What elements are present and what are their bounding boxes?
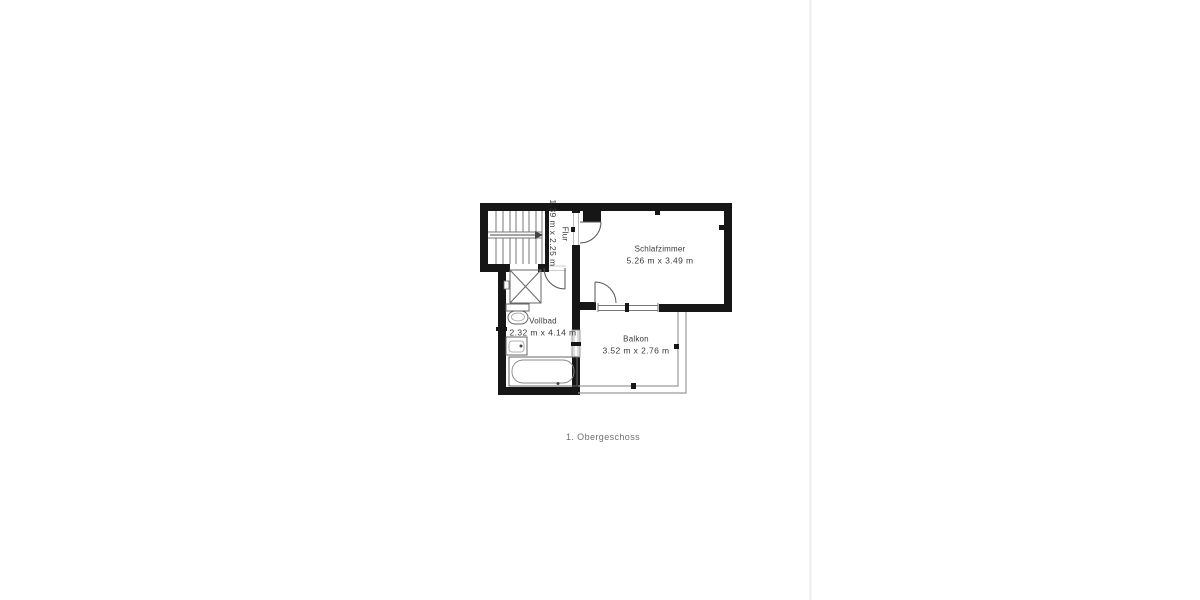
wall-flur-right-stub	[572, 203, 580, 213]
room-label-schlafzimmer: Schlafzimmer 5.26 m x 3.49 m	[627, 244, 694, 267]
sink	[506, 337, 527, 355]
door-frame-marker	[571, 227, 575, 232]
room-label-flur-dimensions: 1.39 m x 2.25 m	[548, 200, 558, 267]
wall-balcony-door-sill	[572, 302, 596, 310]
floorplan-scan: 1.39 m x 2.25 m Flur Schlafzimmer 5.26 m…	[0, 0, 1200, 600]
window-marker	[625, 303, 629, 312]
room-dimensions: 3.52 m x 2.76 m	[603, 345, 670, 357]
floorplan-drawing	[0, 0, 1200, 600]
toilet-tank	[506, 304, 529, 311]
room-name: Vollbad	[510, 316, 577, 327]
door-swing-arc	[580, 222, 601, 243]
room-label-flur: Flur	[561, 227, 570, 242]
floor-caption: 1. Obergeschoss	[566, 432, 640, 442]
wall-vollbad-right-lower	[572, 357, 580, 388]
shower-valve-icon	[504, 281, 509, 289]
wall-stair-left	[480, 203, 488, 272]
balcony-door	[595, 282, 616, 303]
wall-flur-right-main	[572, 245, 580, 302]
wall-schlafzimmer-bottom	[659, 304, 732, 312]
wall-vollbad-bottom	[498, 387, 580, 395]
room-dimensions: 5.26 m x 3.49 m	[627, 255, 694, 267]
staircase	[488, 211, 543, 264]
dimension-tick-vollbad-window	[571, 342, 581, 346]
wall-schlafzimmer-right	[724, 203, 732, 312]
sink-drain-icon	[520, 345, 523, 348]
door-swing-arc	[595, 282, 616, 303]
room-label-balkon: Balkon 3.52 m x 2.76 m	[603, 334, 670, 357]
dimension-tick-vollbad-left	[496, 327, 507, 331]
railing-tick-bottom	[631, 383, 636, 389]
room-name: Schlafzimmer	[627, 244, 694, 255]
railing-tick-right	[674, 344, 679, 349]
wall-entry-pillar	[583, 203, 601, 222]
balcony-window	[598, 303, 658, 312]
room-label-vollbad: Vollbad 2.32 m x 4.14 m	[510, 316, 577, 339]
shower	[504, 270, 541, 303]
bathtub-drain-icon	[557, 382, 560, 385]
dimension-tick-top-wall	[655, 211, 660, 215]
dimension-tick-right-wall	[719, 225, 724, 230]
bathtub	[509, 357, 577, 386]
wall-top	[480, 203, 732, 211]
room-dimensions: 2.32 m x 4.14 m	[510, 327, 577, 339]
room-name: Balkon	[603, 334, 670, 345]
